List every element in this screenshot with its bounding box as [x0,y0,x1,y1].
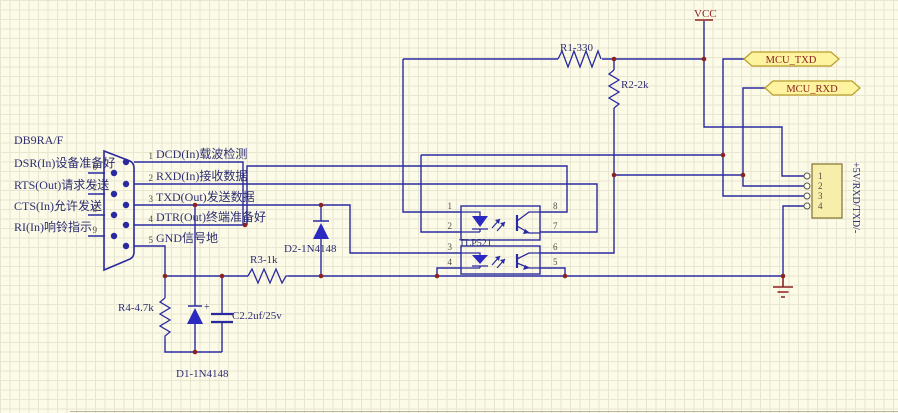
net-flag-label: MCU_RXD [786,84,838,95]
db9-pin-number: 5 [149,235,154,245]
db9-left-label-dsr: DSR(In)设备准备好 [14,156,115,170]
diode-d2[interactable] [313,205,329,276]
opto-transistor-icon [517,212,540,234]
resistor-r1-label[interactable]: R1-330 [560,42,594,54]
db9-title: DB9RA/F [14,133,64,147]
diode-d2-label[interactable]: D2-1N4148 [284,243,337,255]
opto-light-arrows-icon [492,219,505,231]
opto-pin-number: 5 [553,257,558,267]
connector-pin-number: 2 [818,181,823,191]
resistor-r2-label[interactable]: R2-2k [621,79,649,91]
capacitor-c2-label[interactable]: C2.2uf/25v [232,310,282,322]
opto-pin-number: 6 [553,242,558,252]
vcc-label: VCC [694,8,717,20]
connector-pin-number: 1 [818,171,823,181]
wire-mcu-rxd[interactable] [614,88,804,186]
schematic-drawing: DB9RA/F DSR(In)设备准备好 RTS(Out)请求发送 CTS(In… [0,0,898,413]
db9-pin-number: 3 [149,194,154,204]
vcc-power-port[interactable]: VCC [694,8,717,20]
opto-pin-number: 7 [553,221,558,231]
wire-vcc-rail[interactable] [403,21,804,176]
ground-symbol-icon[interactable] [773,276,793,297]
db9-pin-number: 7 [93,183,98,193]
wire-r2-column[interactable] [540,59,614,253]
db9-pin-number: 8 [93,204,98,214]
db9-pin-number: 1 [149,151,154,161]
db9-right-label-txd: TXD(Out)发送数据 [156,189,255,204]
db9-pin-dots [111,159,129,249]
diode-d1[interactable] [187,205,203,352]
optocoupler-upper[interactable] [461,206,540,240]
capacitor-c2-plates [211,314,233,322]
net-flag-mcu-txd[interactable]: MCU_TXD [744,52,839,66]
opto-transistor-icon [517,253,540,270]
connector-pin-number: 4 [818,201,823,211]
connector-pin-number: 3 [818,191,823,201]
opto-pin-number: 1 [448,201,453,211]
resistor-r4-label[interactable]: R4-4.7k [118,302,154,314]
connector-side-label: +5V/RXD/TXD/- [850,162,861,233]
db9-pin-number: 4 [149,214,154,224]
resistor-r4[interactable] [160,298,170,340]
capacitor-c2[interactable] [211,276,233,352]
db9-left-label-ri: RI(In)响铃指示 [14,219,92,234]
opto-pin-number: 4 [448,257,453,267]
opto-led-icon [472,255,488,264]
optocoupler-label[interactable]: TLP521 [459,238,492,249]
capacitor-c2-plus-sign: + [204,302,210,313]
resistor-r3[interactable] [248,269,288,283]
net-flag-mcu-rxd[interactable]: MCU_RXD [765,81,860,95]
db9-right-label-gnd: GND信号地 [156,231,218,245]
opto-pin-number: 2 [448,221,453,231]
optocoupler-lower[interactable] [461,246,540,274]
wire-neg-rail[interactable] [165,340,222,352]
db9-right-label-rxd: RXD(In)接收数据 [156,168,247,183]
resistor-r3-label[interactable]: R3-1k [250,254,278,266]
db9-pin-number: 9 [93,225,98,235]
resistor-r2[interactable] [609,70,619,108]
wire-opto1-anode[interactable] [403,59,461,212]
opto-pin-number: 8 [553,201,558,211]
diode-d1-label[interactable]: D1-1N4148 [176,368,229,380]
opto-pin-number: 3 [448,242,453,252]
db9-pin-number: 2 [149,173,154,183]
opto-led-icon [472,216,488,227]
connector-pin-circles [804,173,810,209]
schematic-canvas: DB9RA/F DSR(In)设备准备好 RTS(Out)请求发送 CTS(In… [0,0,898,413]
output-connector[interactable]: 1 2 3 4 [804,164,842,218]
db9-pin-number: 6 [93,162,98,172]
db9-right-label-dcd: DCD(In)载波检测 [156,146,247,161]
diode-d2-triangle [313,223,329,239]
db9-right-label-dtr: DTR(Out)终端准备好 [156,209,266,224]
canvas-bottom-edge [70,411,898,412]
net-flag-label: MCU_TXD [766,55,817,66]
diode-d1-triangle [187,308,203,324]
db9-left-label-cts: CTS(In)允许发送 [14,198,102,213]
opto-light-arrows-icon [492,256,505,268]
